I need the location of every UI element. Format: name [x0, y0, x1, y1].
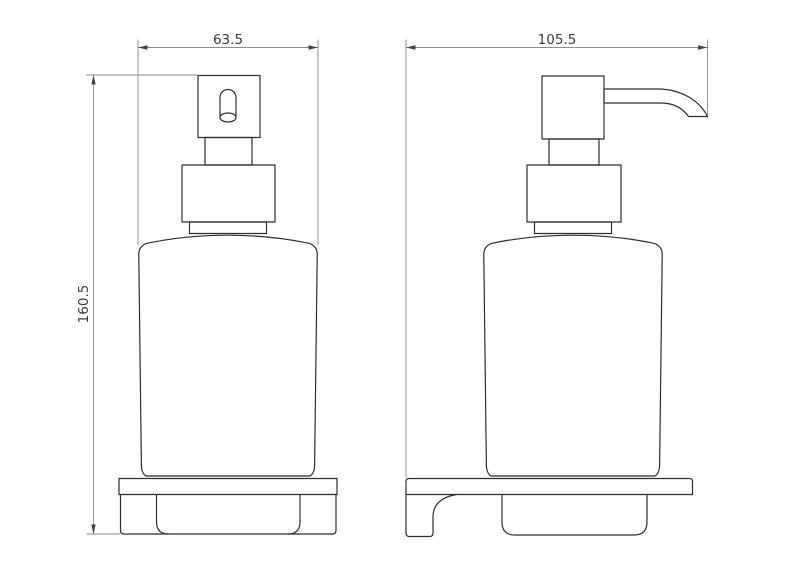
front-width-arrow-right — [309, 45, 319, 49]
technical-drawing-canvas: 63.5 160.5 105.5 — [0, 0, 800, 565]
front-nozzle-opening-bottom — [220, 113, 236, 122]
front-collar-ring — [190, 222, 267, 234]
front-holder-plate — [119, 479, 337, 495]
side-pump-collar — [527, 165, 621, 222]
front-holder-cup-edge-right — [288, 495, 300, 535]
front-pump-neck — [205, 138, 252, 166]
side-width-arrow-left — [406, 45, 416, 49]
front-view: 63.5 160.5 — [76, 32, 337, 534]
side-width-dimension-label: 105.5 — [538, 32, 577, 48]
front-height-dimension-label: 160.5 — [76, 285, 92, 324]
side-collar-ring — [535, 222, 612, 234]
side-view: 105.5 — [406, 32, 708, 537]
front-holder-body — [121, 495, 337, 535]
front-width-dimension-label: 63.5 — [213, 32, 243, 48]
front-height-arrow-bottom — [91, 525, 95, 535]
front-height-arrow-top — [91, 75, 95, 85]
front-width-arrow-left — [138, 45, 148, 49]
side-bottle-body — [484, 235, 662, 476]
side-spout — [604, 89, 708, 117]
side-holder-plate — [406, 479, 693, 495]
side-pump-neck — [549, 139, 599, 165]
front-pump-head — [198, 76, 260, 138]
side-wall-bracket — [406, 495, 457, 537]
front-holder-cup-edge-left — [157, 495, 169, 535]
side-width-arrow-right — [698, 45, 708, 49]
side-pump-head — [542, 76, 604, 139]
front-pump-collar — [182, 165, 275, 222]
side-holder-cup — [502, 495, 647, 536]
front-bottle-body — [139, 235, 317, 476]
